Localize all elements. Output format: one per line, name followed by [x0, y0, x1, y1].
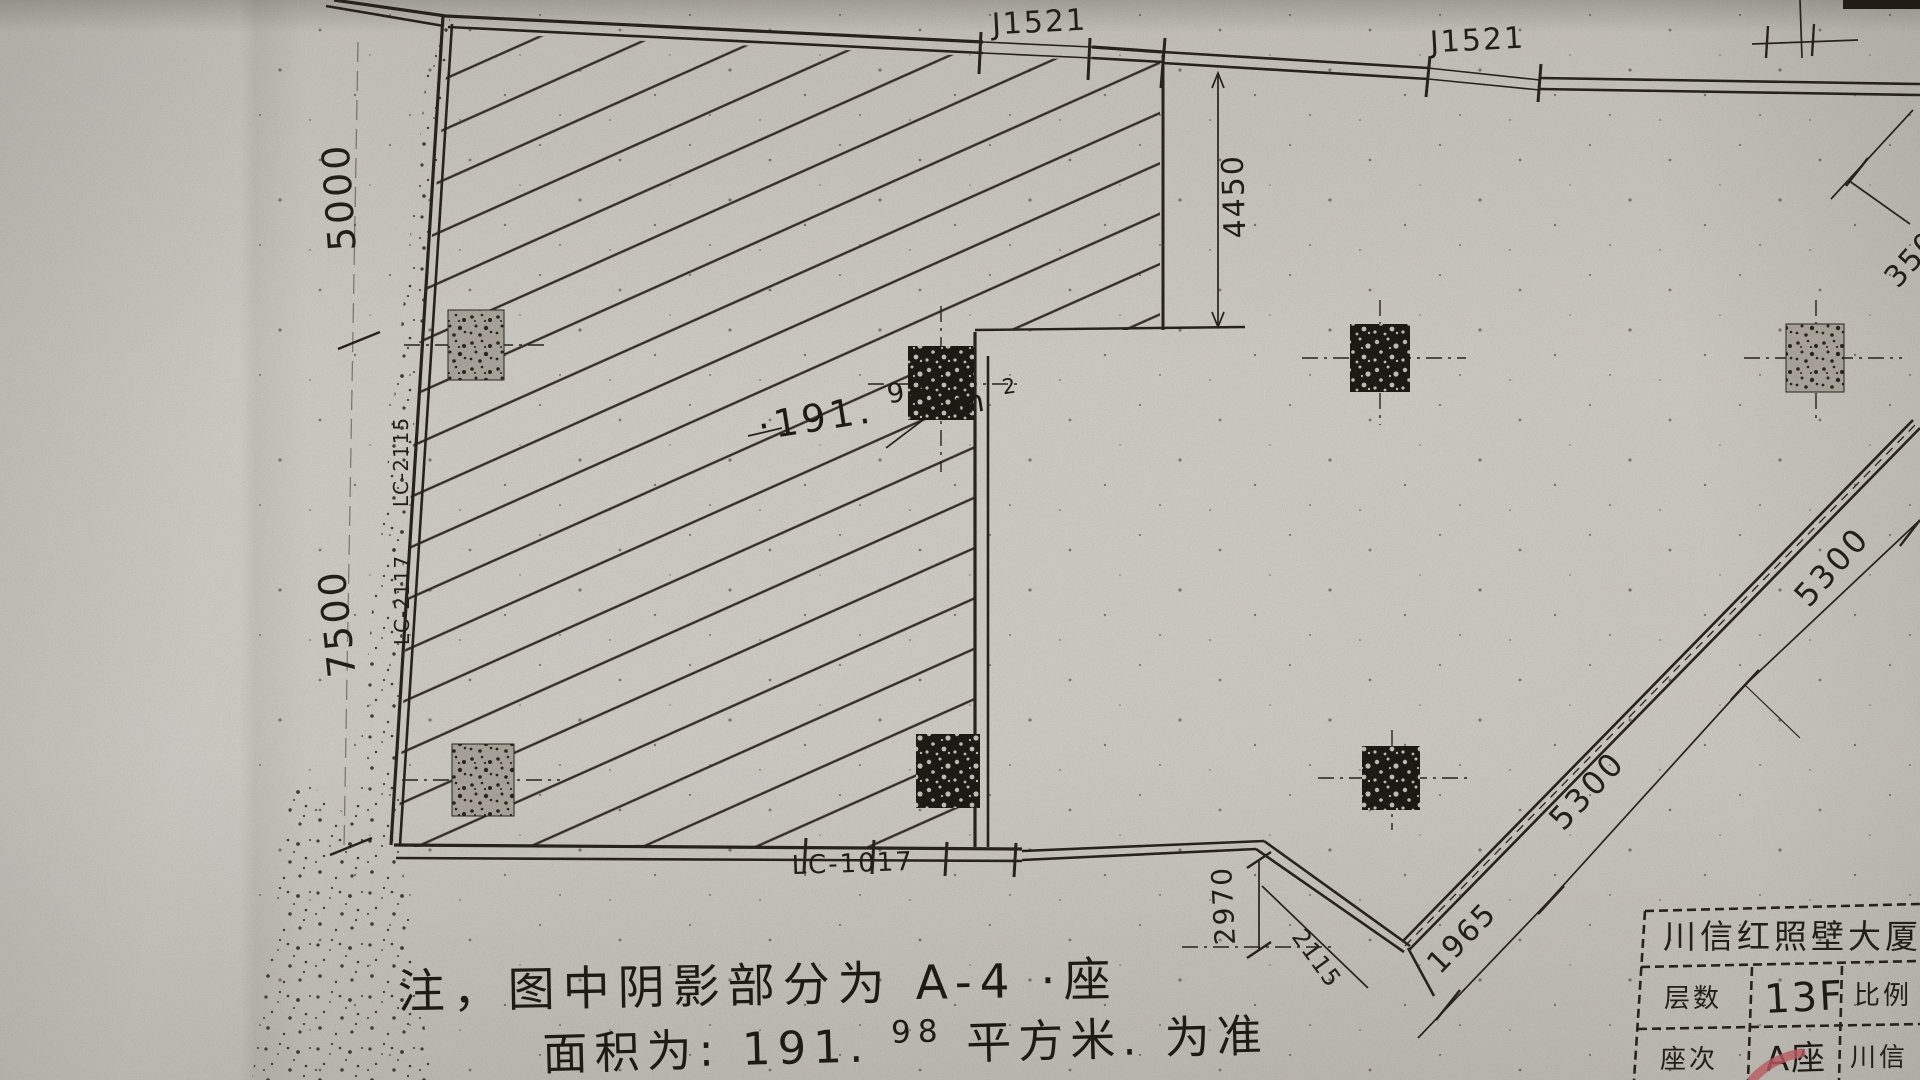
photo-grain [0, 0, 1920, 1080]
scanned-floor-plan-photo: J1521 J1521 5000 7500 LC-2115 LC-2117 44… [0, 0, 1920, 1080]
floor-plan-drawing: J1521 J1521 5000 7500 LC-2115 LC-2117 44… [0, 0, 1920, 1080]
